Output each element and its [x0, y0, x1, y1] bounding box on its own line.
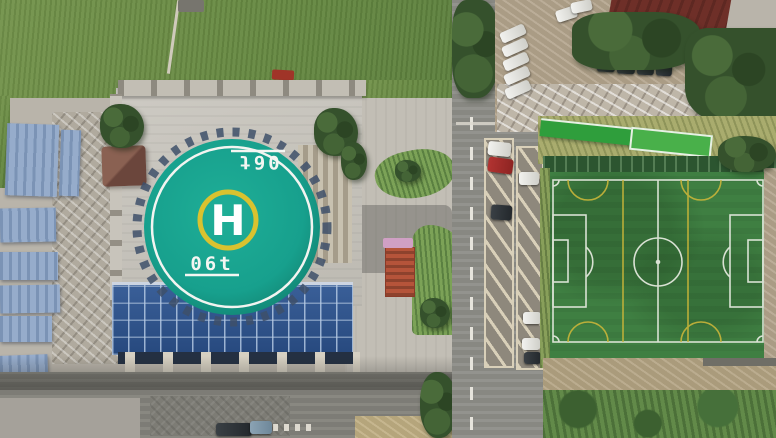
car — [491, 204, 513, 220]
warehouse-roof — [0, 208, 56, 243]
car — [522, 338, 540, 350]
field-left-margin — [540, 168, 550, 368]
field-right-margin — [764, 168, 776, 360]
svg-text:06t: 06t — [190, 253, 233, 275]
boundary-wall-top — [118, 80, 366, 96]
warehouse-roof — [0, 252, 58, 280]
trees-right-block — [685, 28, 776, 120]
magenta-canopy — [383, 238, 413, 248]
red-vehicle-behind-wall — [272, 69, 294, 80]
building-shadow — [0, 356, 475, 390]
road-center-dashes — [470, 108, 473, 430]
warehouse-roof — [5, 123, 59, 197]
warehouse-roof — [0, 284, 60, 313]
shrub-courtyard — [395, 160, 421, 182]
warehouse-roof — [59, 130, 81, 197]
retaining-edge — [703, 358, 776, 366]
car — [519, 172, 539, 185]
weight-marking-north: 06t — [231, 151, 285, 173]
weight-marking-south: 06t — [185, 253, 239, 275]
tree-field-corner — [718, 136, 776, 172]
bottom-right-bushes — [543, 390, 776, 438]
soccer-field-markings — [543, 165, 776, 365]
bush-on-lawn — [420, 298, 450, 328]
plaza-shrub-right — [341, 142, 367, 180]
helipad: H 06t 06t — [127, 122, 337, 332]
car — [524, 352, 541, 364]
trees-lot-row — [572, 12, 700, 70]
car — [216, 423, 252, 436]
red-tower-roof — [385, 247, 415, 297]
warehouse-roof — [0, 316, 52, 342]
car — [250, 421, 272, 434]
svg-text:06t: 06t — [236, 151, 279, 173]
dark-object-top — [178, 0, 204, 12]
car — [487, 141, 511, 157]
tree-road-entrance — [452, 0, 500, 98]
light-pavement-corner — [0, 398, 140, 438]
aerial-photo: H 06t 06t — [0, 0, 776, 438]
helipad-letter: H — [210, 196, 245, 245]
car — [523, 312, 541, 324]
